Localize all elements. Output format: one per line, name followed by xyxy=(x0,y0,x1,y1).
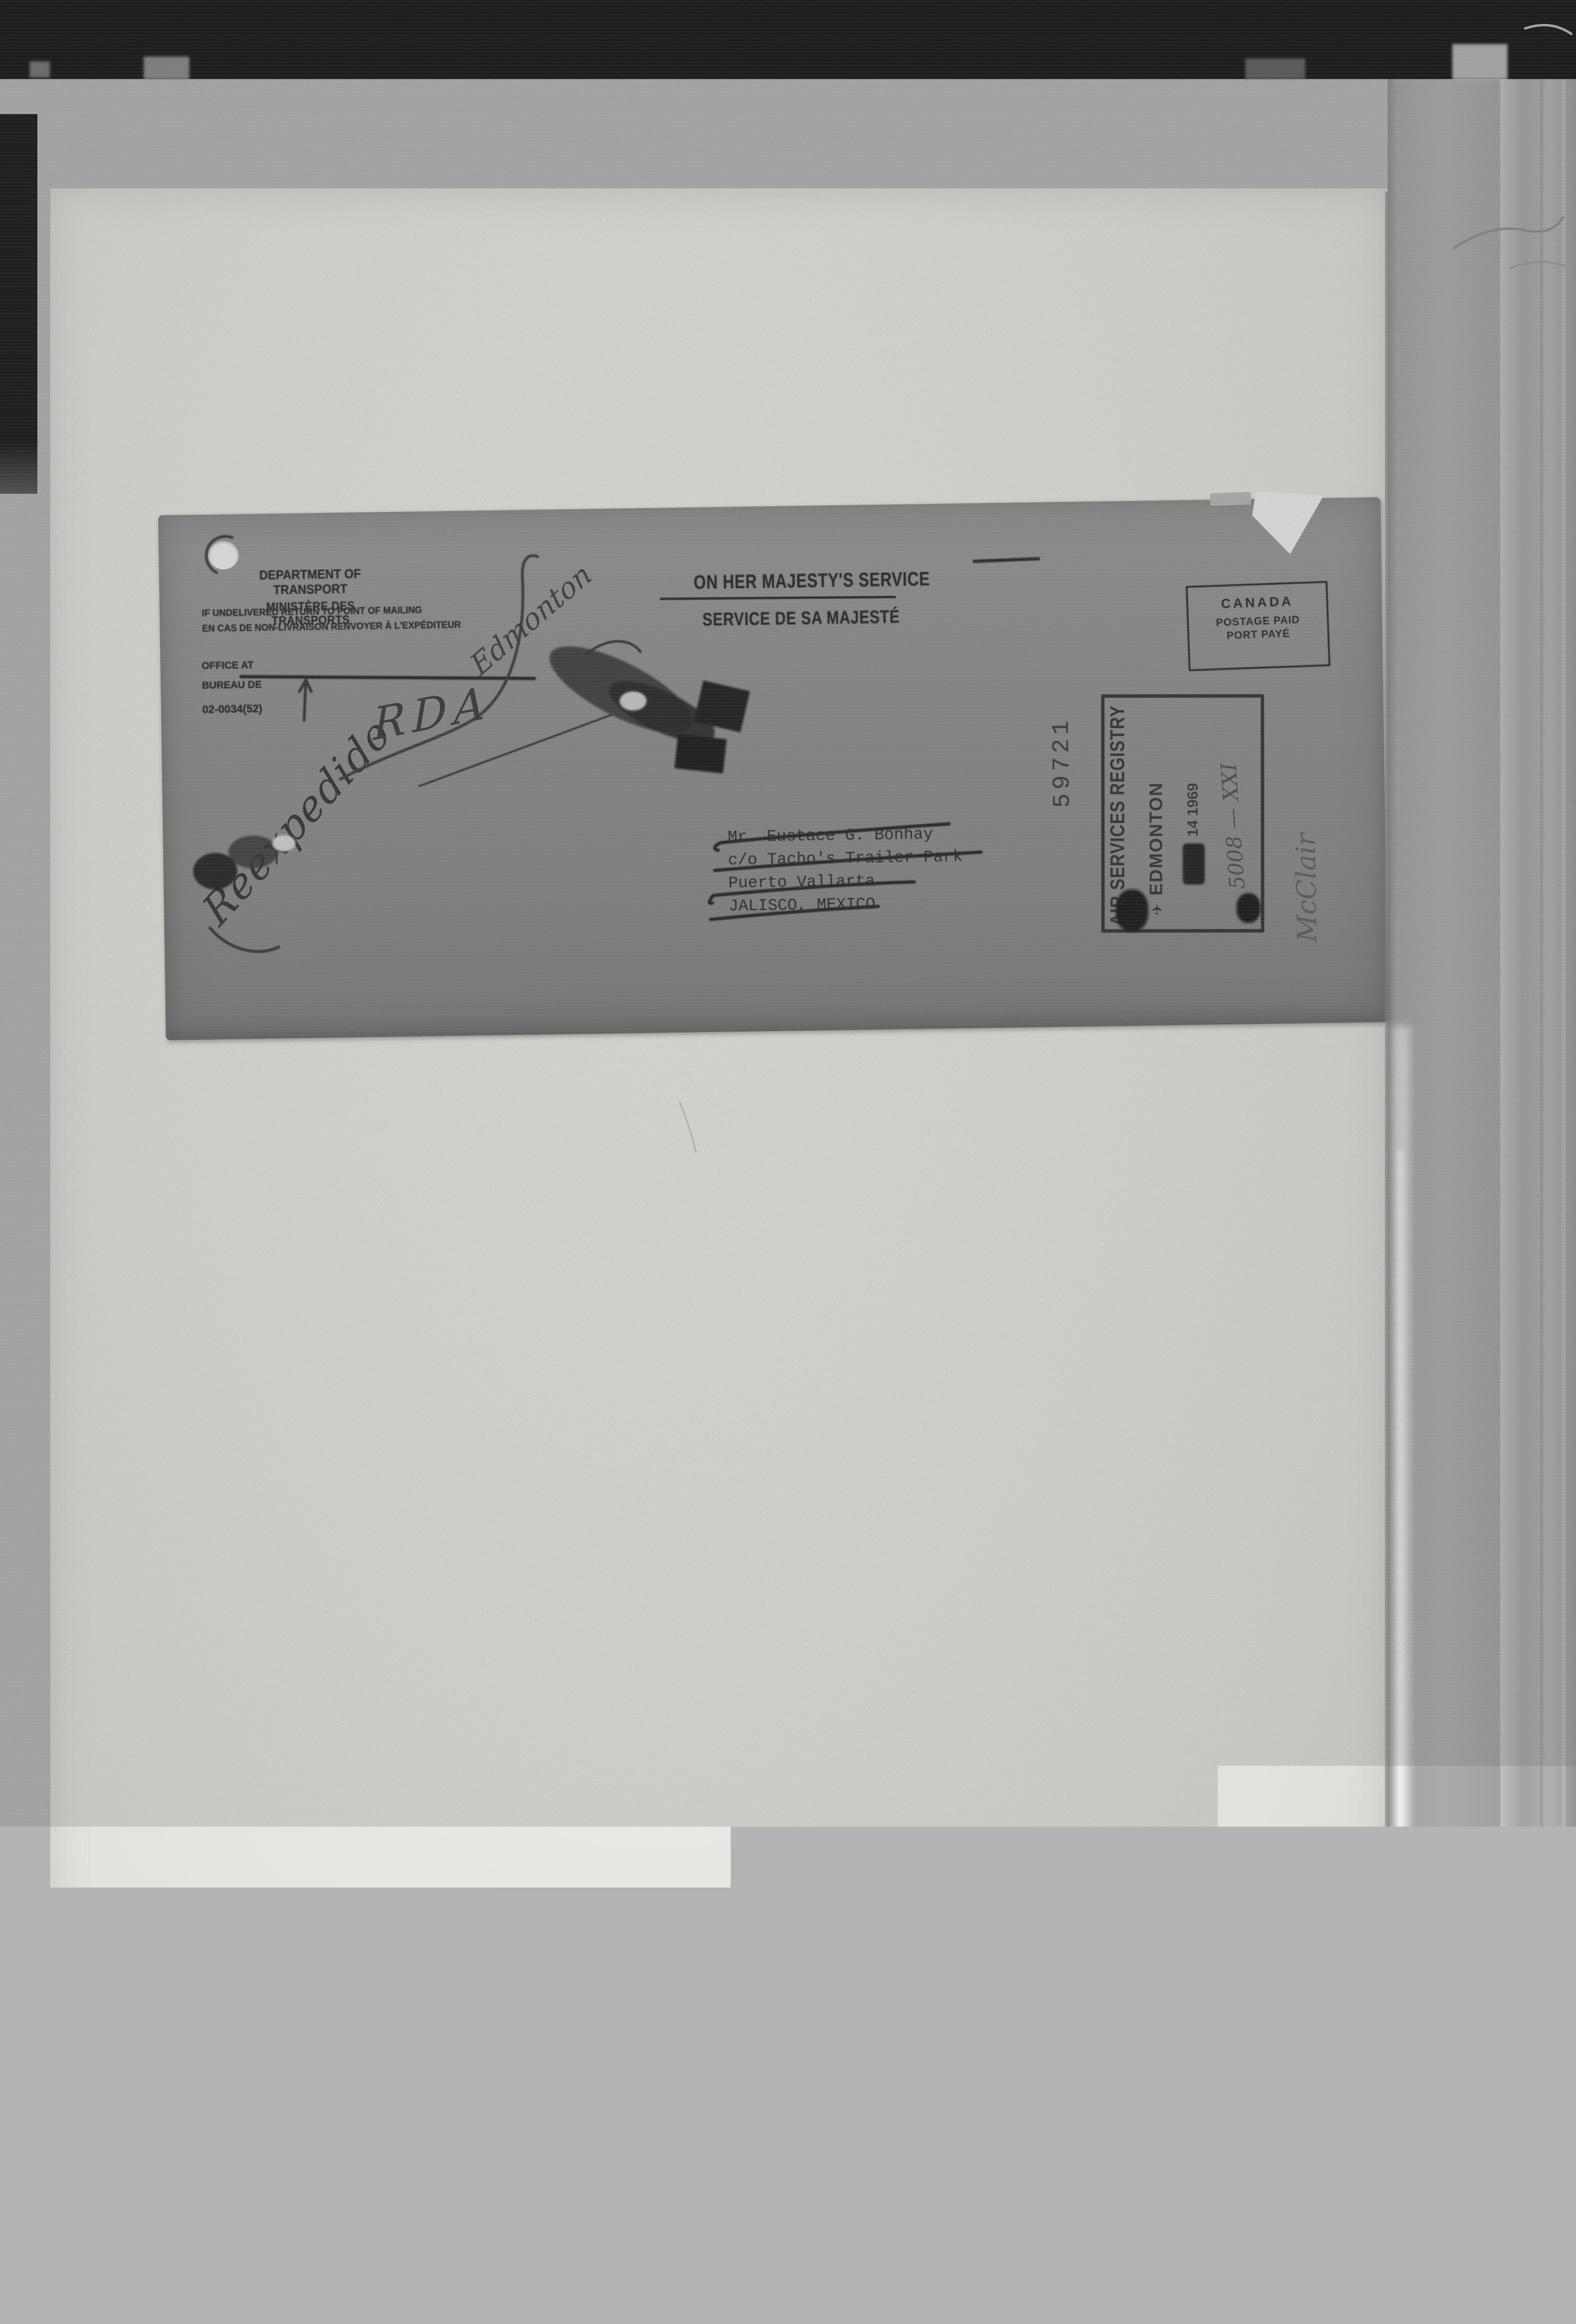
strike-line-2 xyxy=(715,852,981,871)
cachet-smudge xyxy=(538,627,752,776)
ink-blob xyxy=(193,835,296,890)
far-right-margin xyxy=(1500,79,1576,2324)
right-margin-strip xyxy=(1388,79,1500,2324)
envelope-ink-marks xyxy=(158,497,1388,1040)
left-film-border xyxy=(0,114,37,494)
envelope: DEPARTMENT OF TRANSPORT MINISTÈRE DES TR… xyxy=(158,497,1388,1040)
strike-line-1 xyxy=(715,824,950,850)
bottom-margin xyxy=(0,2234,1576,2324)
strike-line-3 xyxy=(709,882,915,904)
script-flourish xyxy=(210,927,279,952)
top-film-border xyxy=(0,0,1576,79)
pen-stroke xyxy=(337,556,541,779)
photo-paper xyxy=(50,188,1388,2234)
thin-line xyxy=(418,715,613,786)
arrow-annotation xyxy=(299,680,312,720)
photo-scan-page: DEPARTMENT OF TRANSPORT MINISTÈRE DES TR… xyxy=(0,0,1576,2324)
office-line xyxy=(241,672,534,683)
strike-line-4 xyxy=(710,906,878,919)
